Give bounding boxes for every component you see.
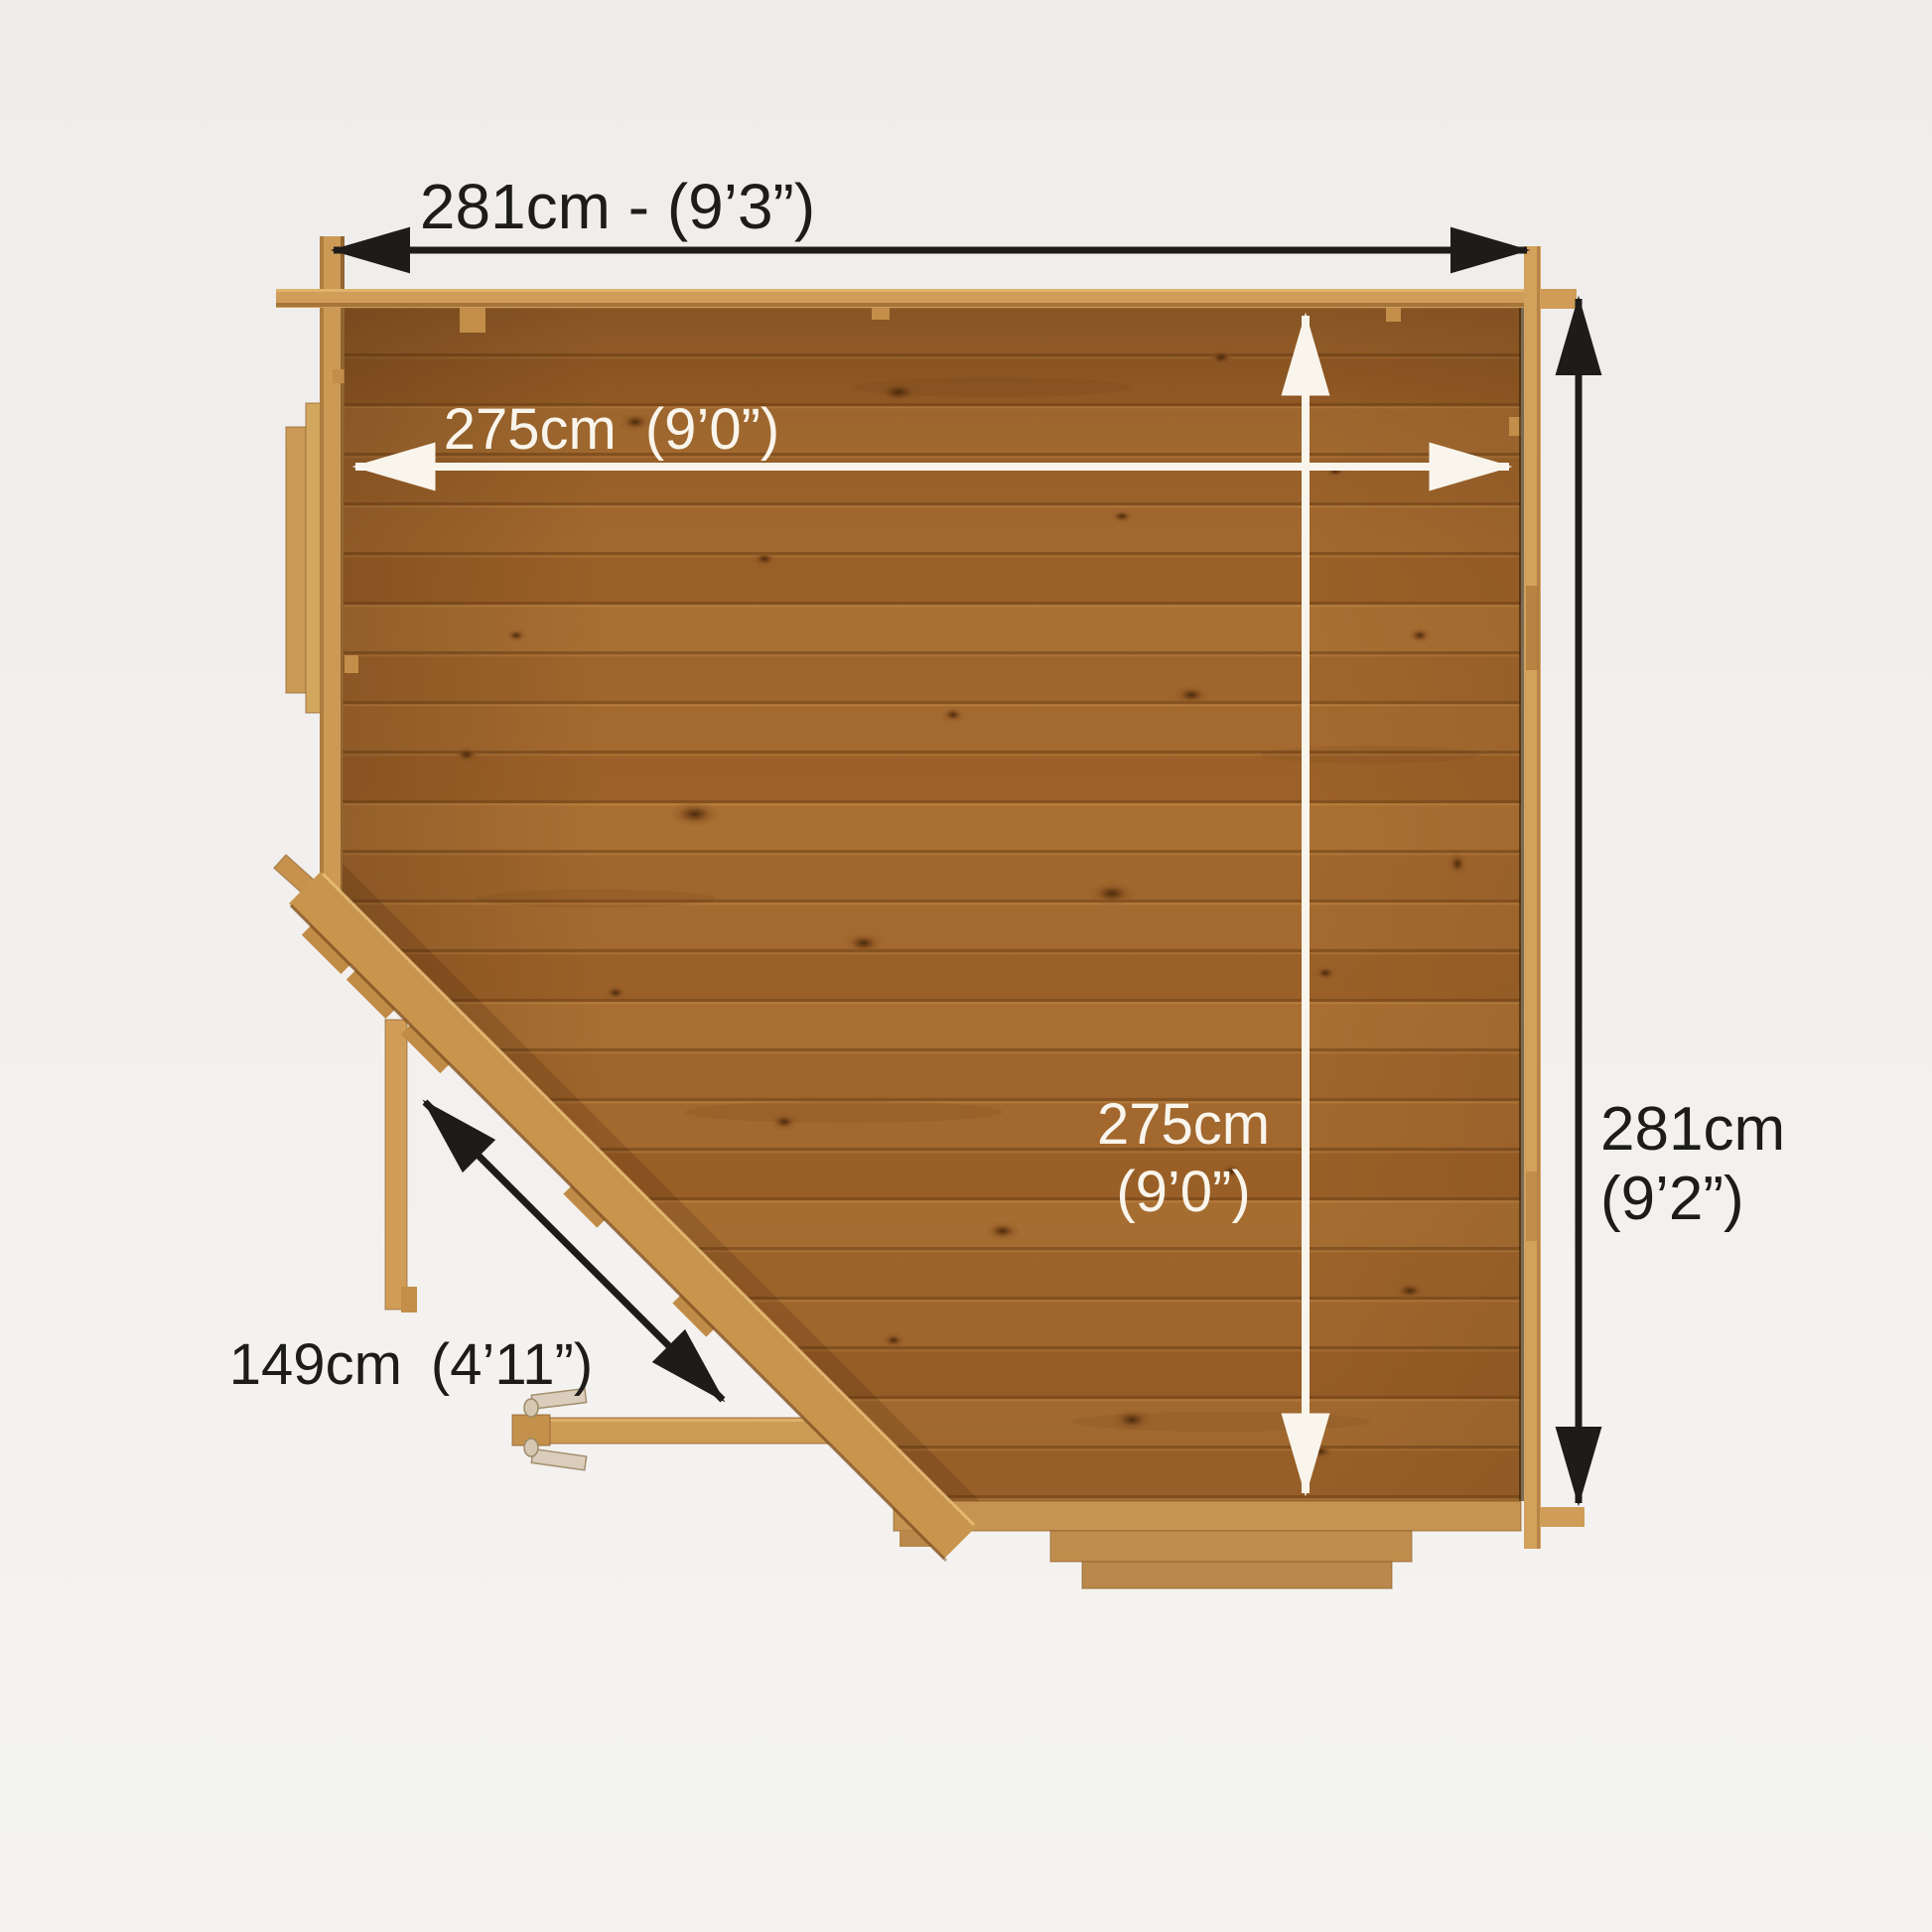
dim-internal-width-label: 275cm (9’0”) <box>444 397 779 462</box>
dim-internal-depth-line2: (9’0”) <box>1116 1160 1250 1224</box>
dim-overall-depth-line2: (9’2”) <box>1600 1165 1744 1233</box>
cabin-floor <box>343 304 1524 1503</box>
floor-texture <box>343 307 1524 1503</box>
threshold-steps <box>894 1501 1521 1588</box>
dim-overall-depth-line1: 281cm <box>1600 1095 1785 1164</box>
top-wall <box>276 289 1577 308</box>
floor-plan-canvas: 281cm - (9’3”) 275cm (9’0”) 275cm (9’0”)… <box>0 0 1932 1932</box>
door-jamb-post <box>385 1020 417 1312</box>
dim-overall-width-label: 281cm - (9’3”) <box>420 171 815 242</box>
dim-internal-depth-line1: 275cm <box>1097 1092 1270 1157</box>
product-dimension-image: 281cm - (9’3”) 275cm (9’0”) 275cm (9’0”)… <box>0 0 1932 1932</box>
left-wall <box>320 236 345 953</box>
dim-front-diagonal-label: 149cm (4’11”) <box>229 1332 593 1397</box>
